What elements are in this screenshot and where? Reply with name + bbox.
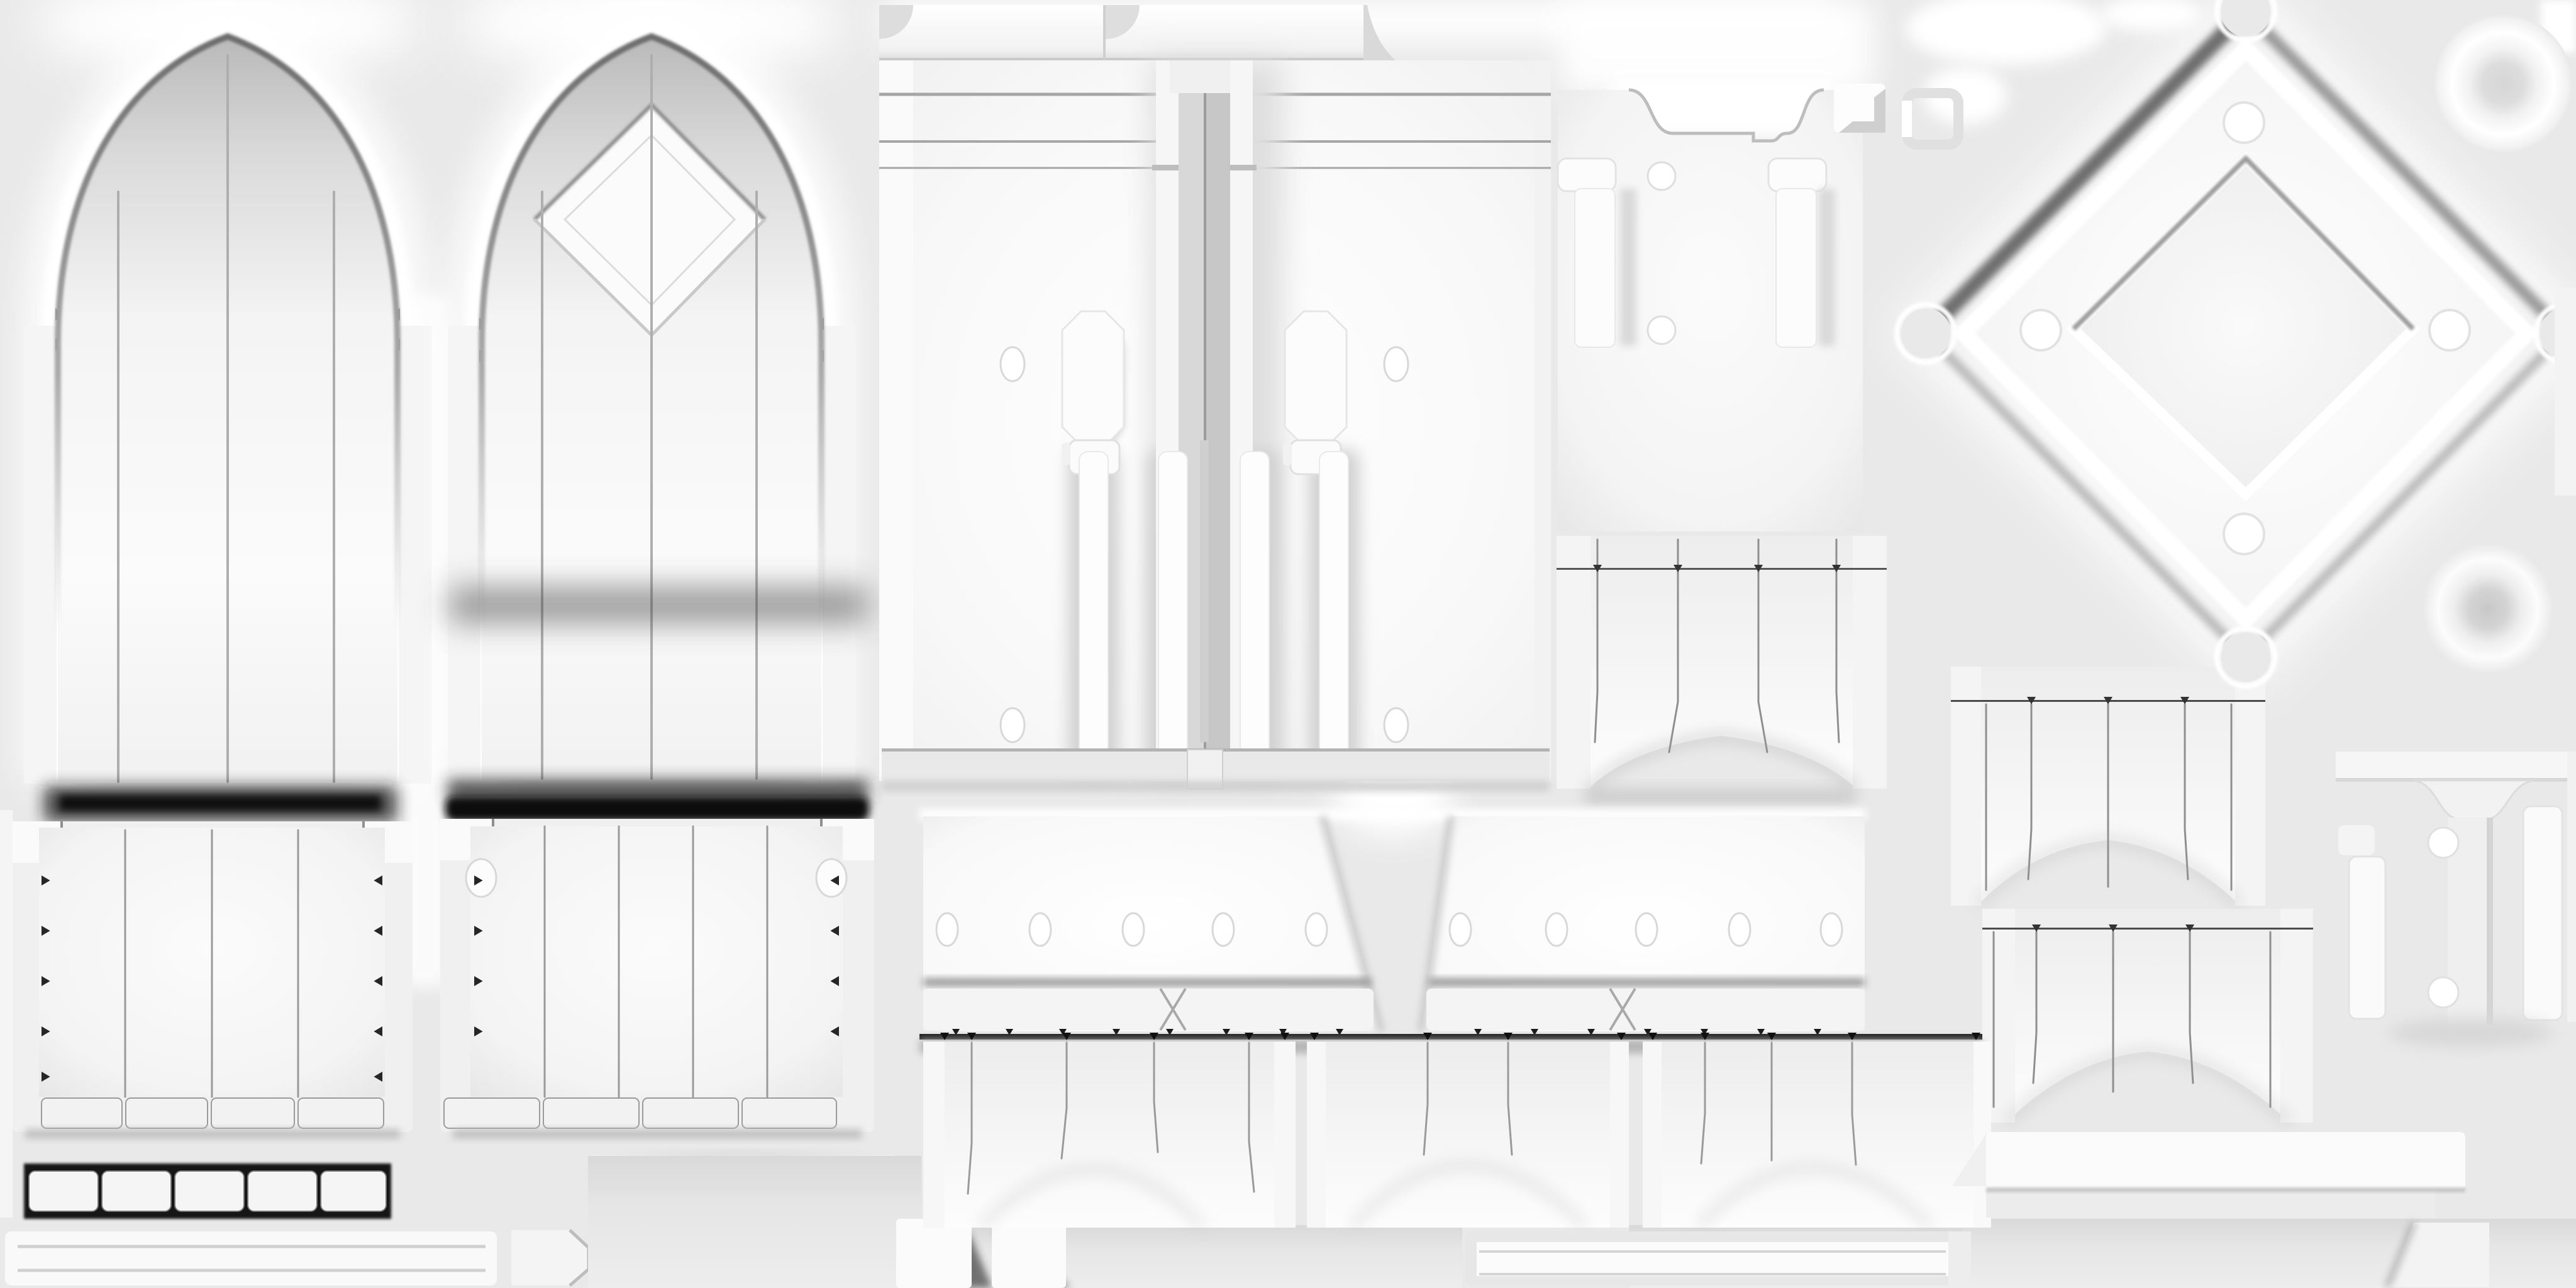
beam-rivets-9 [1821, 913, 1842, 946]
corner-bite-left [1901, 308, 1951, 358]
mid-slats-3 [1319, 452, 1348, 770]
lancet-window-left [24, 36, 431, 821]
pillar-wall-panel [879, 60, 1551, 791]
door-slat-shadow-right [1819, 189, 1835, 346]
paneled-base-left [13, 821, 413, 1138]
capital-circles-0 [2428, 828, 2458, 858]
fence-post-right [2280, 909, 2313, 1123]
molding-segments [29, 1171, 386, 1211]
shaft-top-cap [1170, 60, 1230, 93]
mid-slats-2 [1240, 452, 1269, 770]
texture-atlas-sheet [0, 0, 2576, 1288]
beam-bottom-line [919, 1034, 1982, 1040]
curtain-edge-2L [1307, 1041, 1326, 1228]
p2-rail-segments-0 [444, 1098, 540, 1128]
capital-shaft-shade [2487, 818, 2493, 1025]
door-slat-right [1776, 189, 1816, 347]
fence-post-left [1951, 667, 1981, 906]
contact-shadow-core [60, 795, 380, 811]
curtain-edge-3L [1643, 1041, 1662, 1228]
chamfered-plank [511, 1230, 589, 1285]
mid-slats-1 [1158, 452, 1187, 770]
left-edge-strip [0, 810, 13, 1218]
atlas-canvas [0, 0, 2576, 1288]
door-slat-shadow-left [1620, 189, 1636, 346]
diamond-circles-2 [2429, 310, 2470, 350]
mid-rivets-3 [1384, 708, 1408, 742]
curtain-edge-1L [923, 1041, 945, 1228]
floor-blocks-1 [992, 1219, 1066, 1288]
mid-rivets-0 [1001, 347, 1024, 381]
p1-rail-segments-2 [211, 1098, 294, 1128]
beam-rivets-0 [936, 913, 958, 946]
arch-side-molding-left [24, 326, 57, 784]
arch-side-molding-right [399, 326, 431, 784]
wall-under-shadow [882, 781, 1550, 791]
beam-rivets-2 [1123, 913, 1144, 946]
center-rod [1200, 440, 1209, 742]
door-cap-right [1768, 158, 1826, 191]
rp-circles-1 [1648, 316, 1675, 344]
diamond-circles-3 [2224, 514, 2264, 554]
grooved-plank [5, 1231, 497, 1285]
p2-rail-segments-1 [543, 1098, 639, 1128]
p2-rivets-1 [816, 859, 847, 897]
pilaster-capital-right [1226, 165, 1257, 170]
floor-left [588, 1156, 921, 1288]
beam-molding-left [923, 989, 1374, 1030]
beam-rivets-1 [1030, 913, 1051, 946]
capital-under-shadow [2389, 1018, 2552, 1048]
mid-rivets-1 [1384, 347, 1408, 381]
platform-edge-shadow [1986, 1187, 2465, 1192]
panel-under-shadow [25, 1130, 400, 1138]
beam-molding-shadow-left [923, 979, 1371, 986]
mid-rivets-2 [1001, 708, 1024, 742]
torus-grommet-top [2434, 14, 2572, 153]
right-edge-sliver-low [2567, 752, 2576, 1022]
molding-segments-4 [321, 1171, 386, 1211]
p1-rail-segments-0 [42, 1098, 122, 1128]
p1-rail-segments-3 [298, 1098, 384, 1128]
lintel-seam [1103, 5, 1106, 60]
p2-rail-segments-2 [643, 1098, 738, 1128]
beam-rivets-3 [1213, 913, 1234, 946]
pilaster-capital-left [1152, 165, 1182, 170]
molding-segments-0 [29, 1171, 98, 1211]
panel-bottom-rail [42, 1098, 384, 1128]
mid-slats-0 [1079, 452, 1108, 770]
torus-grommet-bottom [2423, 543, 2553, 674]
beam-rivets-5 [1450, 913, 1471, 946]
black-contact-band [445, 796, 869, 821]
riveted-beam [919, 809, 1982, 1053]
capital-top-bar [2336, 752, 2575, 780]
soft-shadow-band [450, 587, 868, 623]
lancet-window-diamond [445, 36, 869, 821]
arch-side-molding-right [823, 326, 855, 780]
curtain-edge-1R [1274, 1041, 1296, 1228]
molding-segments-1 [102, 1171, 171, 1211]
arch-side-molding-left [448, 326, 480, 780]
octagon-plate-right [1285, 311, 1346, 446]
platform-step [1986, 1190, 2435, 1218]
beam-rivets-6 [1546, 913, 1567, 946]
right-edge-sliver-mid [2555, 288, 2576, 496]
ogee-door-panel [1558, 75, 1863, 531]
capital-circles-1 [2428, 977, 2458, 1008]
capital-nub-left [2338, 825, 2375, 855]
diamond-circles-1 [2021, 310, 2061, 350]
molding-segments-3 [248, 1171, 317, 1211]
molding-segments-2 [175, 1171, 244, 1211]
door-slat-left [1575, 189, 1615, 347]
curtain-panels [923, 1033, 1991, 1228]
corner-bite-bottom [2221, 632, 2271, 682]
fence-post-right [2235, 667, 2265, 906]
platform-bar [1986, 1132, 2465, 1190]
octagon-plate-left [1062, 311, 1124, 446]
curtain-edge-2R [1610, 1041, 1629, 1228]
p2-rivets-0 [466, 859, 496, 897]
diamond-circles-0 [2224, 103, 2264, 143]
recessed-plank-stripe [1477, 1242, 1948, 1276]
chevron-molding-row [24, 1163, 391, 1219]
paneled-base-right [440, 819, 874, 1138]
corner-post [1948, 1231, 1971, 1288]
rp-circles-0 [1648, 162, 1675, 190]
beam-rivets-7 [1636, 913, 1657, 946]
door-cap-left [1558, 158, 1616, 191]
floor-blocks-0 [896, 1219, 972, 1288]
beam-rivets-4 [1306, 913, 1327, 946]
capital-slat-left [2349, 857, 2385, 1019]
panel-face [470, 826, 843, 1097]
beam-molding-right [1426, 989, 1865, 1030]
p2-rail-segments-3 [742, 1098, 836, 1128]
p1-rail-segments-1 [126, 1098, 208, 1128]
hook-step-left [1062, 443, 1070, 465]
fence-post-left [1557, 536, 1591, 789]
shaft-right [1206, 60, 1230, 780]
fence-under-shadow [1585, 790, 1855, 804]
fence-top-rail [1982, 928, 2313, 930]
beam-rivets-8 [1729, 913, 1750, 946]
curtain-panel-1 [923, 1041, 1296, 1228]
beveled-block-a [1834, 84, 1885, 133]
panel-under-shadow [453, 1130, 862, 1138]
beam-molding-shadow-right [1429, 979, 1865, 986]
capital-slat-right [2523, 806, 2562, 1020]
pleated-panel-b [1951, 667, 2265, 906]
curtain-panel-3 [1643, 1041, 1982, 1228]
fence-post-right [1853, 536, 1887, 789]
recessed-plank [1465, 1231, 1960, 1285]
hook-step-right [1283, 443, 1292, 465]
curtain-panel-2 [1307, 1041, 1629, 1228]
plank-body [5, 1231, 497, 1285]
